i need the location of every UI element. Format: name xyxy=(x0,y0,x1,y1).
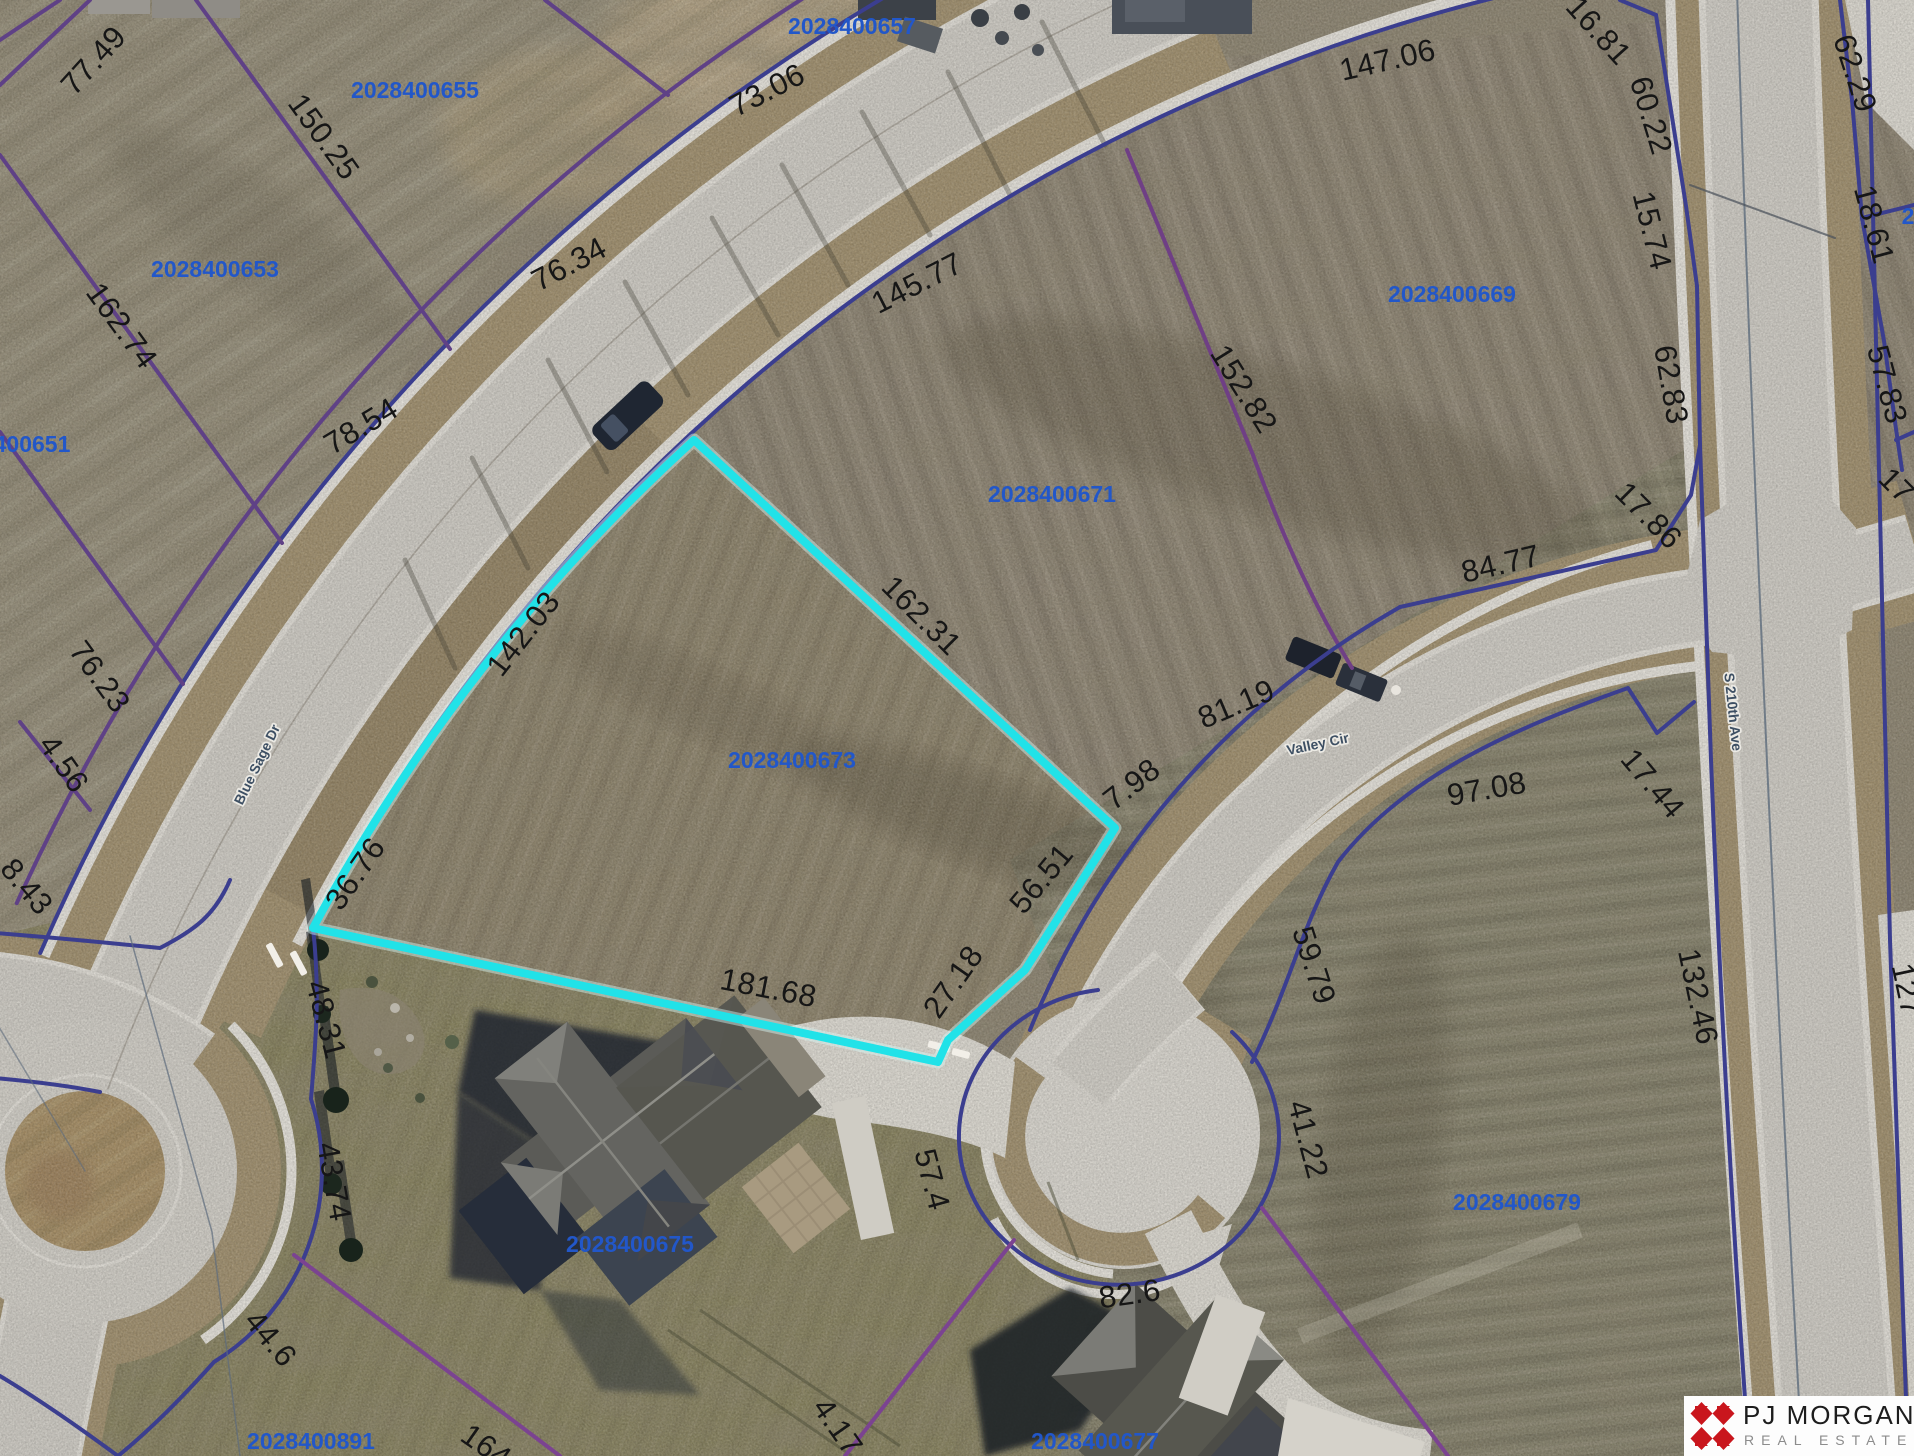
svg-text:2028400675: 2028400675 xyxy=(566,1231,694,1257)
svg-text:2028400669: 2028400669 xyxy=(1388,281,1516,307)
svg-text:REAL ESTATE: REAL ESTATE xyxy=(1744,1432,1913,1448)
svg-text:2028400657: 2028400657 xyxy=(788,13,916,39)
svg-text:400651: 400651 xyxy=(0,431,71,457)
svg-text:2028400671: 2028400671 xyxy=(988,481,1116,507)
svg-text:2028400655: 2028400655 xyxy=(351,77,479,103)
svg-text:2028400679: 2028400679 xyxy=(1453,1189,1581,1215)
svg-text:PJ MORGAN: PJ MORGAN xyxy=(1743,1400,1914,1430)
svg-text:2028400673: 2028400673 xyxy=(728,747,856,773)
svg-text:2028400891: 2028400891 xyxy=(247,1428,375,1454)
svg-text:2028400677: 2028400677 xyxy=(1031,1428,1159,1454)
svg-text:2: 2 xyxy=(1902,203,1914,229)
svg-text:2028400653: 2028400653 xyxy=(151,256,279,282)
